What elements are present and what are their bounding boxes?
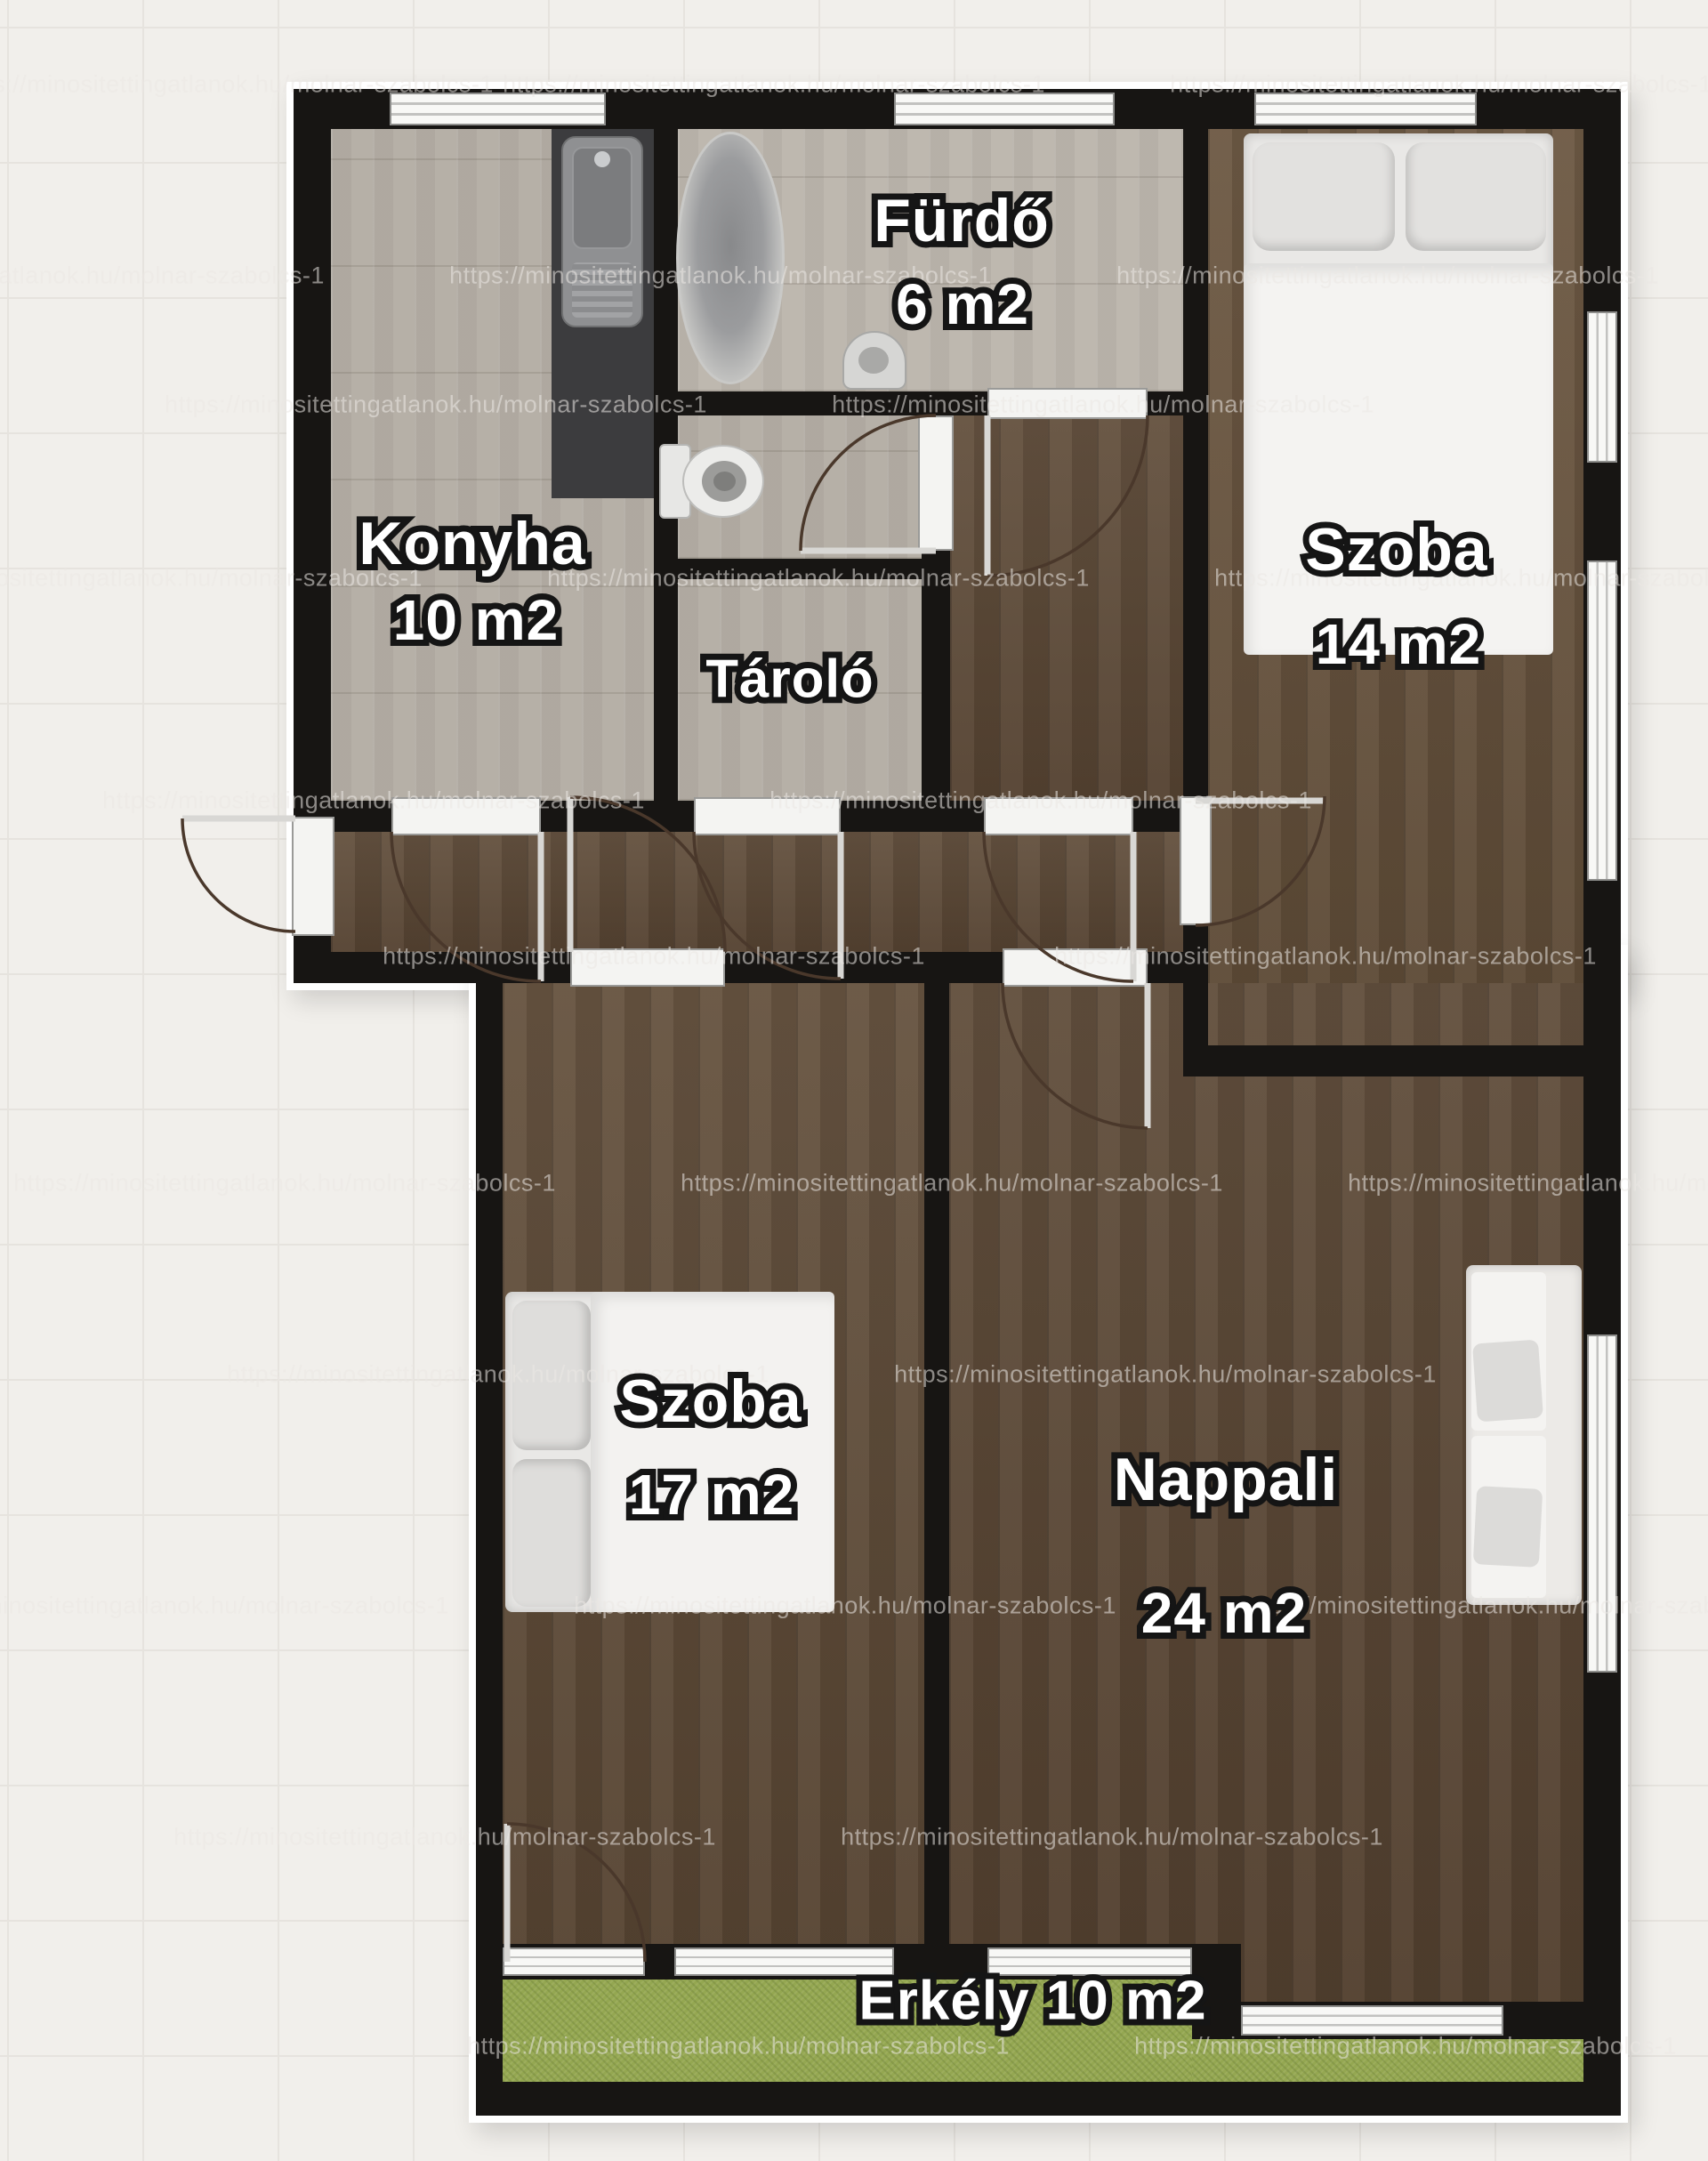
door-swing-arcs: [0, 0, 1708, 2161]
room-area-szoba14: 14 m2: [1316, 611, 1481, 677]
door-arc-wc: [801, 415, 936, 551]
room-label-konyha: Konyha: [359, 509, 585, 578]
door-arc-konyha: [391, 832, 541, 981]
room-area-konyha: 10 m2: [393, 587, 559, 653]
room-label-erkely: Erkély 10 m2: [858, 1970, 1206, 2033]
room-label-furdo: Fürdő: [874, 186, 1050, 255]
door-arc-tarolo: [694, 832, 841, 979]
room-area-nappali: 24 m2: [1141, 1580, 1307, 1646]
room-label-szoba14: Szoba: [1305, 515, 1487, 585]
room-area-furdo: 6 m2: [896, 271, 1029, 337]
door-arc-balcony: [507, 1824, 645, 1962]
room-label-nappali: Nappali: [1114, 1445, 1339, 1514]
room-label-szoba17: Szoba: [619, 1367, 802, 1436]
door-arc-anteroom: [984, 832, 1133, 981]
door-arc-entrance: [182, 818, 295, 931]
background-grid: Konyha 10 m2 Fürdő 6 m2 Tároló Szoba 14 …: [0, 0, 1708, 2161]
room-label-tarolo: Tároló: [705, 649, 874, 710]
door-arc-szoba14: [1196, 796, 1325, 925]
door-arc-furdo: [987, 415, 1148, 576]
room-area-szoba17: 17 m2: [629, 1462, 794, 1528]
door-arc-nappali: [1003, 983, 1148, 1128]
